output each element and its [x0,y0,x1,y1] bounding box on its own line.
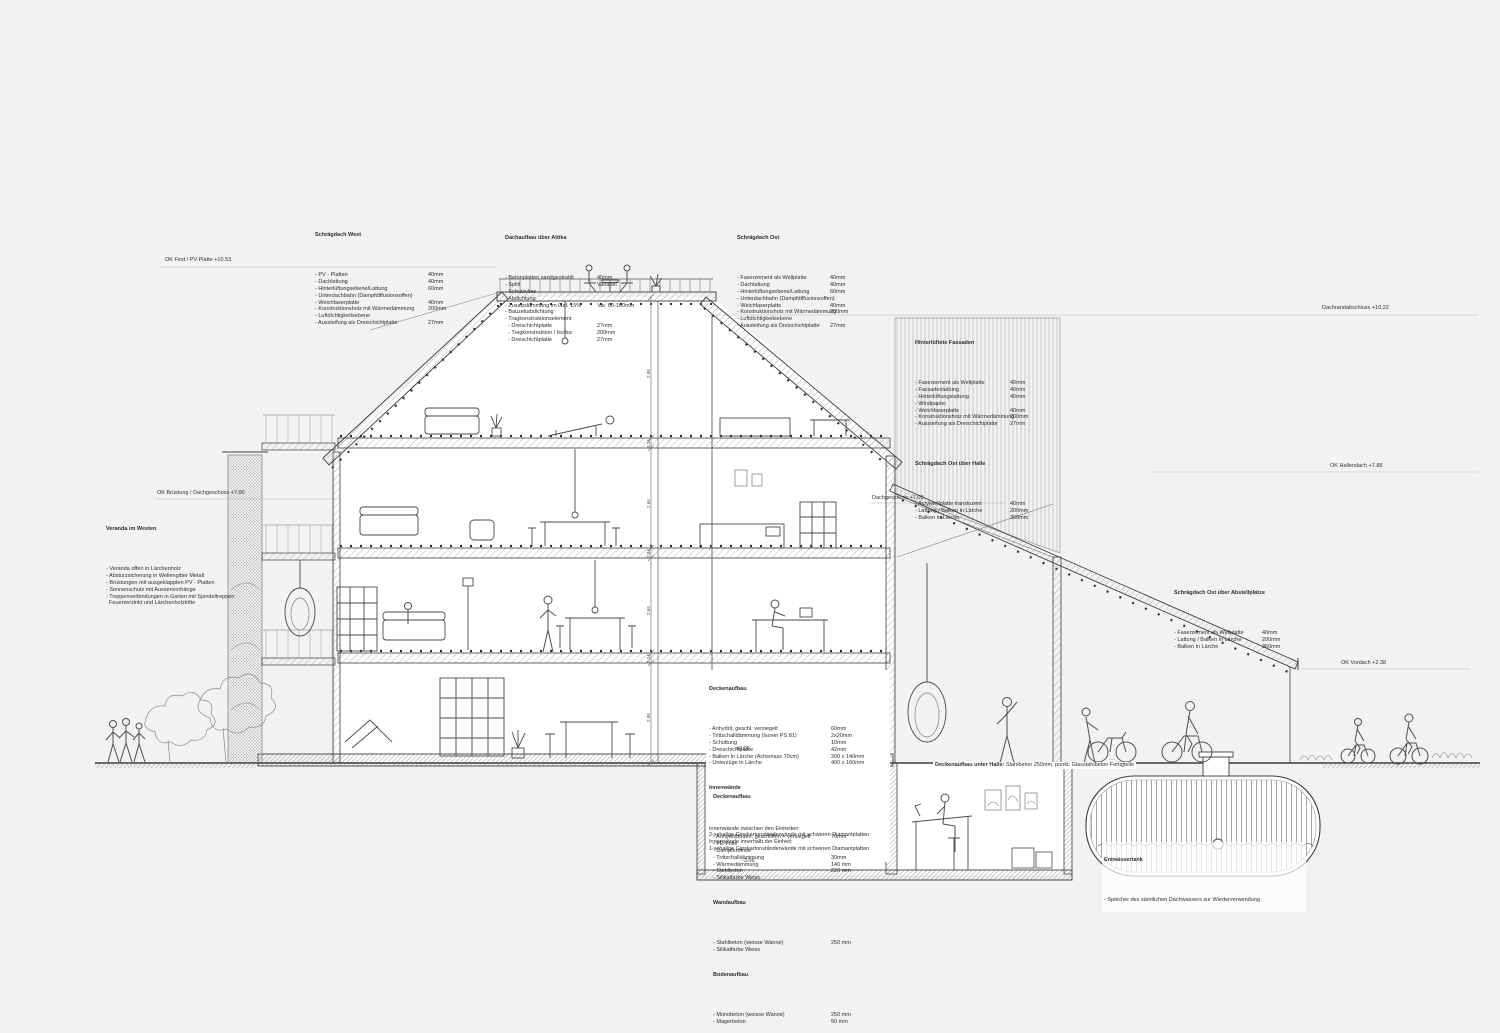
hall-slab-note-text: Stahlbeton 250mm, punkt. Glasstahlbeton … [1004,762,1134,768]
dim-value: 2.86 [646,369,651,378]
spec-rows: - Faserzement als Wellplatte40mm- Lattun… [1174,610,1334,651]
dim-value: 0.34 [646,549,651,558]
spec-title: Schrägdach Ost über Halle [915,461,1070,468]
spec-title: Entwässertank [1104,857,1304,864]
elevation-level-zero: ±0.00 [736,746,750,752]
hall-slab-note-title: Deckenaufbau unter Halle: [935,762,1004,768]
spec-title: Veranda im Westen [106,526,286,533]
elevation-ok-bruestung: OK Brüstung / Dachgeschoss +7.00 [157,490,245,496]
spec-subtitle: Wandaufbau [713,900,878,907]
spec-title: Hinterlüftete Fassaden [915,340,1080,347]
spec-title: Dachaufbau über Attika [505,235,670,242]
spec-rows: - PV - Platten40mm- Dachlattung40mm- Hin… [315,252,480,327]
spec-veranda-westen: Veranda im Westen - Veranda offen in Lär… [106,512,286,614]
spec-title: Deckenaufbau [709,686,887,693]
spec-title: Schrägdach Ost über Abstellplätze [1174,590,1334,597]
spec-dachaufbau-attika: Dachaufbau über Attika - Betonplatten sa… [505,221,670,350]
elevation-dachgeschoss-ost: Dachgeschoss +7.00 [872,495,924,501]
spec-title: Schrägdach West [315,232,480,239]
elevation-ok-hallendach: OK Hallendach +7.88 [1330,463,1382,469]
spec-rows: - Speicher des sämtlichen Dachwassers zu… [1104,877,1304,904]
spec-schraegdach-ost-abstellplaetze: Schrägdach Ost über Abstellplätze - Fase… [1174,576,1334,658]
hall-slab-note: Deckenaufbau unter Halle: Stahlbeton 250… [933,762,1136,769]
spec-schraegdach-ost-halle: Schrägdach Ost über Halle - Acrylwellpla… [915,447,1070,529]
spec-title: Schrägdach Ost [737,235,902,242]
spec-entwaessertank: Entwässertank - Speicher des sämtlichen … [1102,842,1306,912]
dim-value: 2.66 [646,606,651,615]
spec-rows: - Anhydrit, geschl. versiegelt60mm- Trit… [709,706,887,767]
tank-access-shaft [1203,757,1229,776]
spec-rows: - Acrylwellplatte transluzent40mm- Lattu… [915,481,1070,522]
spec-rows: - Betonplatten sandgestrahlt40mm- Splitt… [505,255,670,343]
spec-rows: - Faserzement als Wellplatte40mm- Fassad… [915,360,1080,428]
spec-rows: - Stahlbeton (weisse Wanne)250 mm- Silik… [713,920,878,954]
dim-value: 2.86 [646,713,651,722]
spec-title: Deckenaufbau [713,794,878,801]
spec-rows: - Faserzement als Wellplatte40mm- Dachla… [737,255,902,330]
spec-hinterlueftete-fassaden: Hinterlüftete Fassaden - Faserzement als… [915,326,1080,435]
spec-rows: - Anhydritboden, geschliffen + versiegel… [713,814,878,882]
elevation-level-minus: -3.06 [742,858,755,864]
spec-schraegdach-west: Schrägdach West - PV - Platten40mm- Dach… [315,218,480,334]
spec-rows: - Veranda offen in Lärchenholz- Absturzs… [106,546,286,607]
elevation-dachrandabschluss: Dachrandabschluss +10.22 [1322,305,1389,311]
dim-value: 2.66 [646,499,651,508]
spec-deckenaufbau-ug: Deckenaufbau - Anhydritboden, geschliffe… [713,780,878,1033]
spec-schraegdach-ost: Schrägdach Ost - Faserzement als Wellpla… [737,221,902,337]
dim-value: 0.34 [646,439,651,448]
elevation-ok-first: OK First / PV-Platte +10.53 [165,257,231,263]
tank-lid [1199,752,1233,757]
elevation-ok-vordach: OK Vordach +2.38 [1341,660,1386,666]
spec-subtitle: Bodenaufbau [713,972,878,979]
section-drawing-sheet: Schrägdach West - PV - Platten40mm- Dach… [0,0,1500,1000]
spec-rows: - Monobeton (weisse Wanne)250 mm- Magerb… [713,992,878,1026]
dim-value: 0.34 [646,654,651,663]
